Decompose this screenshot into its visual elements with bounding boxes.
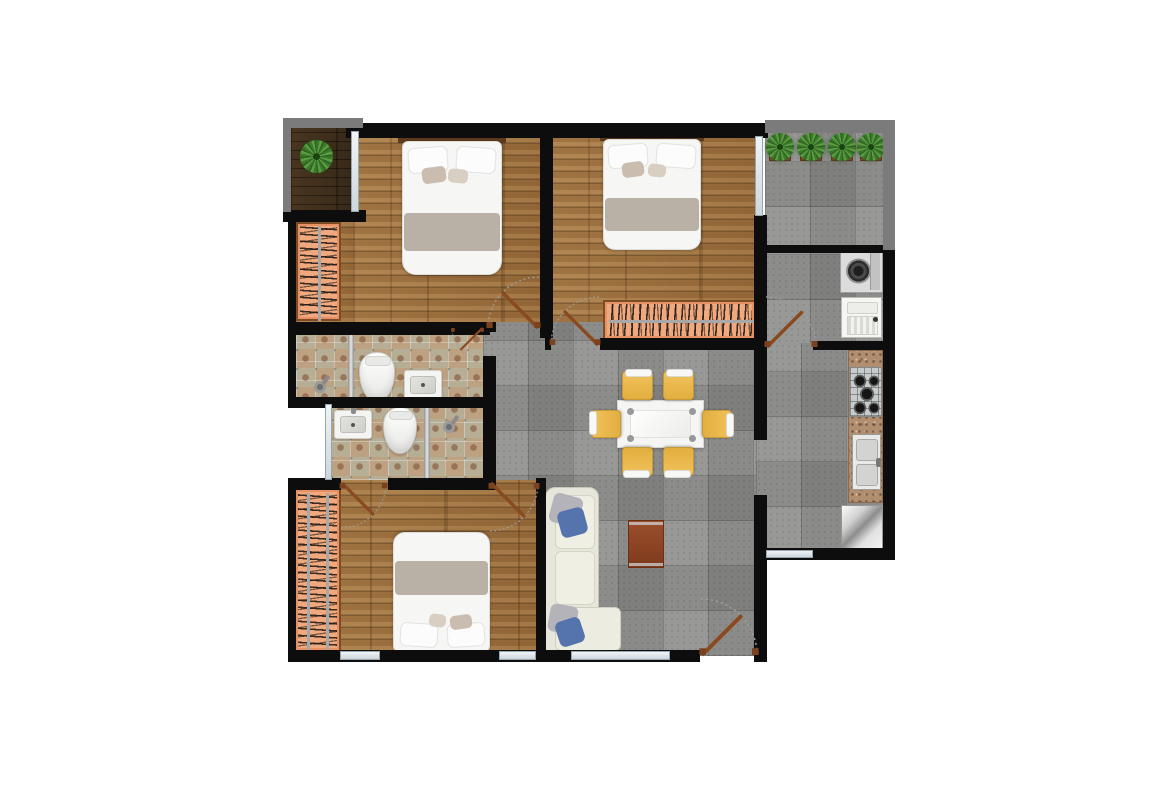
basin-top [847,302,878,314]
wall [600,338,765,350]
wall [813,341,893,350]
terrace-plant [766,133,794,163]
bedroom-1-wardrobe [296,222,341,321]
bathroom-1-shower-head [314,375,328,393]
sofa-cushion [555,551,595,605]
drain [873,317,878,322]
bathroom-1-shower-glass [348,330,354,400]
plant-foliage [766,133,794,161]
pillow-accent [428,613,446,628]
bathroom-2-window [325,404,332,480]
wall [288,478,296,662]
dining-chair [702,410,732,438]
wall [288,397,483,408]
terrace-plant [797,133,825,163]
closet-rail [307,493,310,651]
bathroom-1-sink [404,370,442,400]
exterior-wall [765,120,895,133]
door-bedroom-1 [488,277,539,328]
wall [288,222,296,408]
bathroom-2-shower-glass [424,400,430,480]
basin [856,464,878,486]
exterior-wall [283,118,363,128]
bedroom-3-bed [390,532,493,657]
wall [483,356,496,490]
wall [765,245,893,253]
pillow-accent [421,165,447,184]
plant-foliage [300,140,333,173]
bedroom-3-window [340,651,380,660]
dining-chair [591,410,621,438]
closet-rail [326,493,329,651]
closet-rail [609,320,754,323]
exterior-wall [283,118,291,212]
exterior-wall [883,120,895,250]
dining-chair [622,371,653,400]
plant-foliage [828,133,856,161]
stove [849,367,882,417]
laundry-sink [841,297,882,338]
wall [346,123,768,138]
dining-chair [663,371,694,400]
dining-table [617,400,704,448]
bedroom-2-terrace-window [755,136,763,216]
balcony-window [351,131,359,212]
wall [883,248,895,560]
door-bedroom-3 [490,483,538,531]
terrace-plant [828,133,856,163]
plant-foliage [797,133,825,161]
bedroom-3-window [499,651,536,660]
bathroom-2-shower-head [443,415,457,433]
door-laundry [766,297,816,347]
bedroom-2-bed [600,134,704,250]
bathroom-2-sink [334,410,372,439]
faucet [876,458,881,467]
plant-foliage [857,133,885,161]
blanket [605,198,699,231]
door-bedroom-2 [551,297,599,345]
basin [856,439,878,461]
kitchen-sink [852,434,881,490]
pillow-accent [647,163,666,178]
floor-plan [0,0,1156,786]
coffee-table [628,520,664,568]
pillow-accent [447,168,468,184]
terrace-plant [857,133,885,163]
blanket [404,213,500,251]
bedroom-3-wardrobe [294,488,341,652]
wall [388,478,490,490]
door-bathroom-1 [452,328,483,359]
dining-chair [663,447,694,476]
door-entrance [701,599,757,655]
blanket [395,561,488,595]
bedroom-2-closet [603,300,756,340]
door-bathroom-2 [341,483,386,528]
kitchen-window [766,550,813,558]
refrigerator [841,505,883,549]
sofa [545,487,623,657]
living-room-window [571,651,670,660]
washing-machine [840,249,883,293]
balcony-plant [300,140,333,173]
bedroom-1-bed [398,135,506,275]
closet-rail [318,226,321,321]
dining-chair [622,447,653,476]
